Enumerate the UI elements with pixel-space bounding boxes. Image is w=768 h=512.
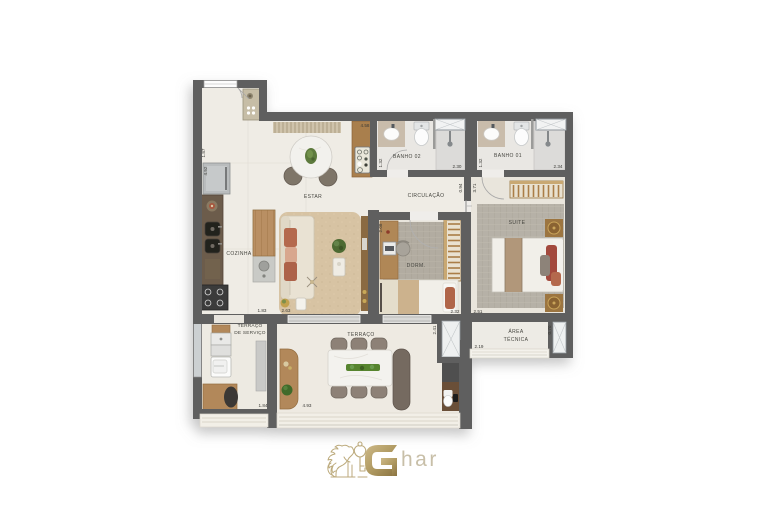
svg-text:1.84: 1.84 [259,403,268,408]
svg-text:1.32: 1.32 [378,158,383,167]
svg-text:1.32: 1.32 [478,158,483,167]
svg-text:CIRCULAÇÃO: CIRCULAÇÃO [408,192,445,199]
svg-text:0.70: 0.70 [547,325,552,334]
svg-text:DE SERVIÇO: DE SERVIÇO [234,330,266,336]
svg-text:1.83: 1.83 [258,308,267,313]
svg-text:har: har [401,448,439,471]
svg-text:0.94: 0.94 [458,183,463,192]
svg-text:4.58: 4.58 [361,123,370,128]
svg-text:COZINHA: COZINHA [226,251,252,257]
svg-text:4.52: 4.52 [203,166,208,175]
svg-text:BANHO 01: BANHO 01 [494,153,522,159]
svg-text:BANHO 02: BANHO 02 [393,154,421,160]
svg-text:2.08: 2.08 [378,223,383,232]
svg-text:TERRAÇO: TERRAÇO [238,323,263,329]
svg-text:2.30: 2.30 [453,164,462,169]
svg-text:2.19: 2.19 [475,344,484,349]
svg-text:DORM.: DORM. [407,263,426,269]
svg-text:2.41: 2.41 [432,325,437,334]
svg-text:ESTAR: ESTAR [304,194,322,200]
svg-text:ÁREA: ÁREA [508,328,523,335]
svg-text:4.93: 4.93 [303,403,312,408]
svg-text:TÉCNICA: TÉCNICA [504,336,529,343]
svg-text:2.34: 2.34 [554,164,563,169]
svg-text:TERRAÇO: TERRAÇO [347,332,374,338]
svg-text:2.63: 2.63 [282,308,291,313]
svg-text:SUITE: SUITE [509,220,526,226]
svg-text:2.32: 2.32 [451,309,460,314]
svg-text:3.71: 3.71 [472,183,477,192]
svg-text:2.51: 2.51 [474,309,483,314]
svg-text:1.87: 1.87 [201,148,206,157]
